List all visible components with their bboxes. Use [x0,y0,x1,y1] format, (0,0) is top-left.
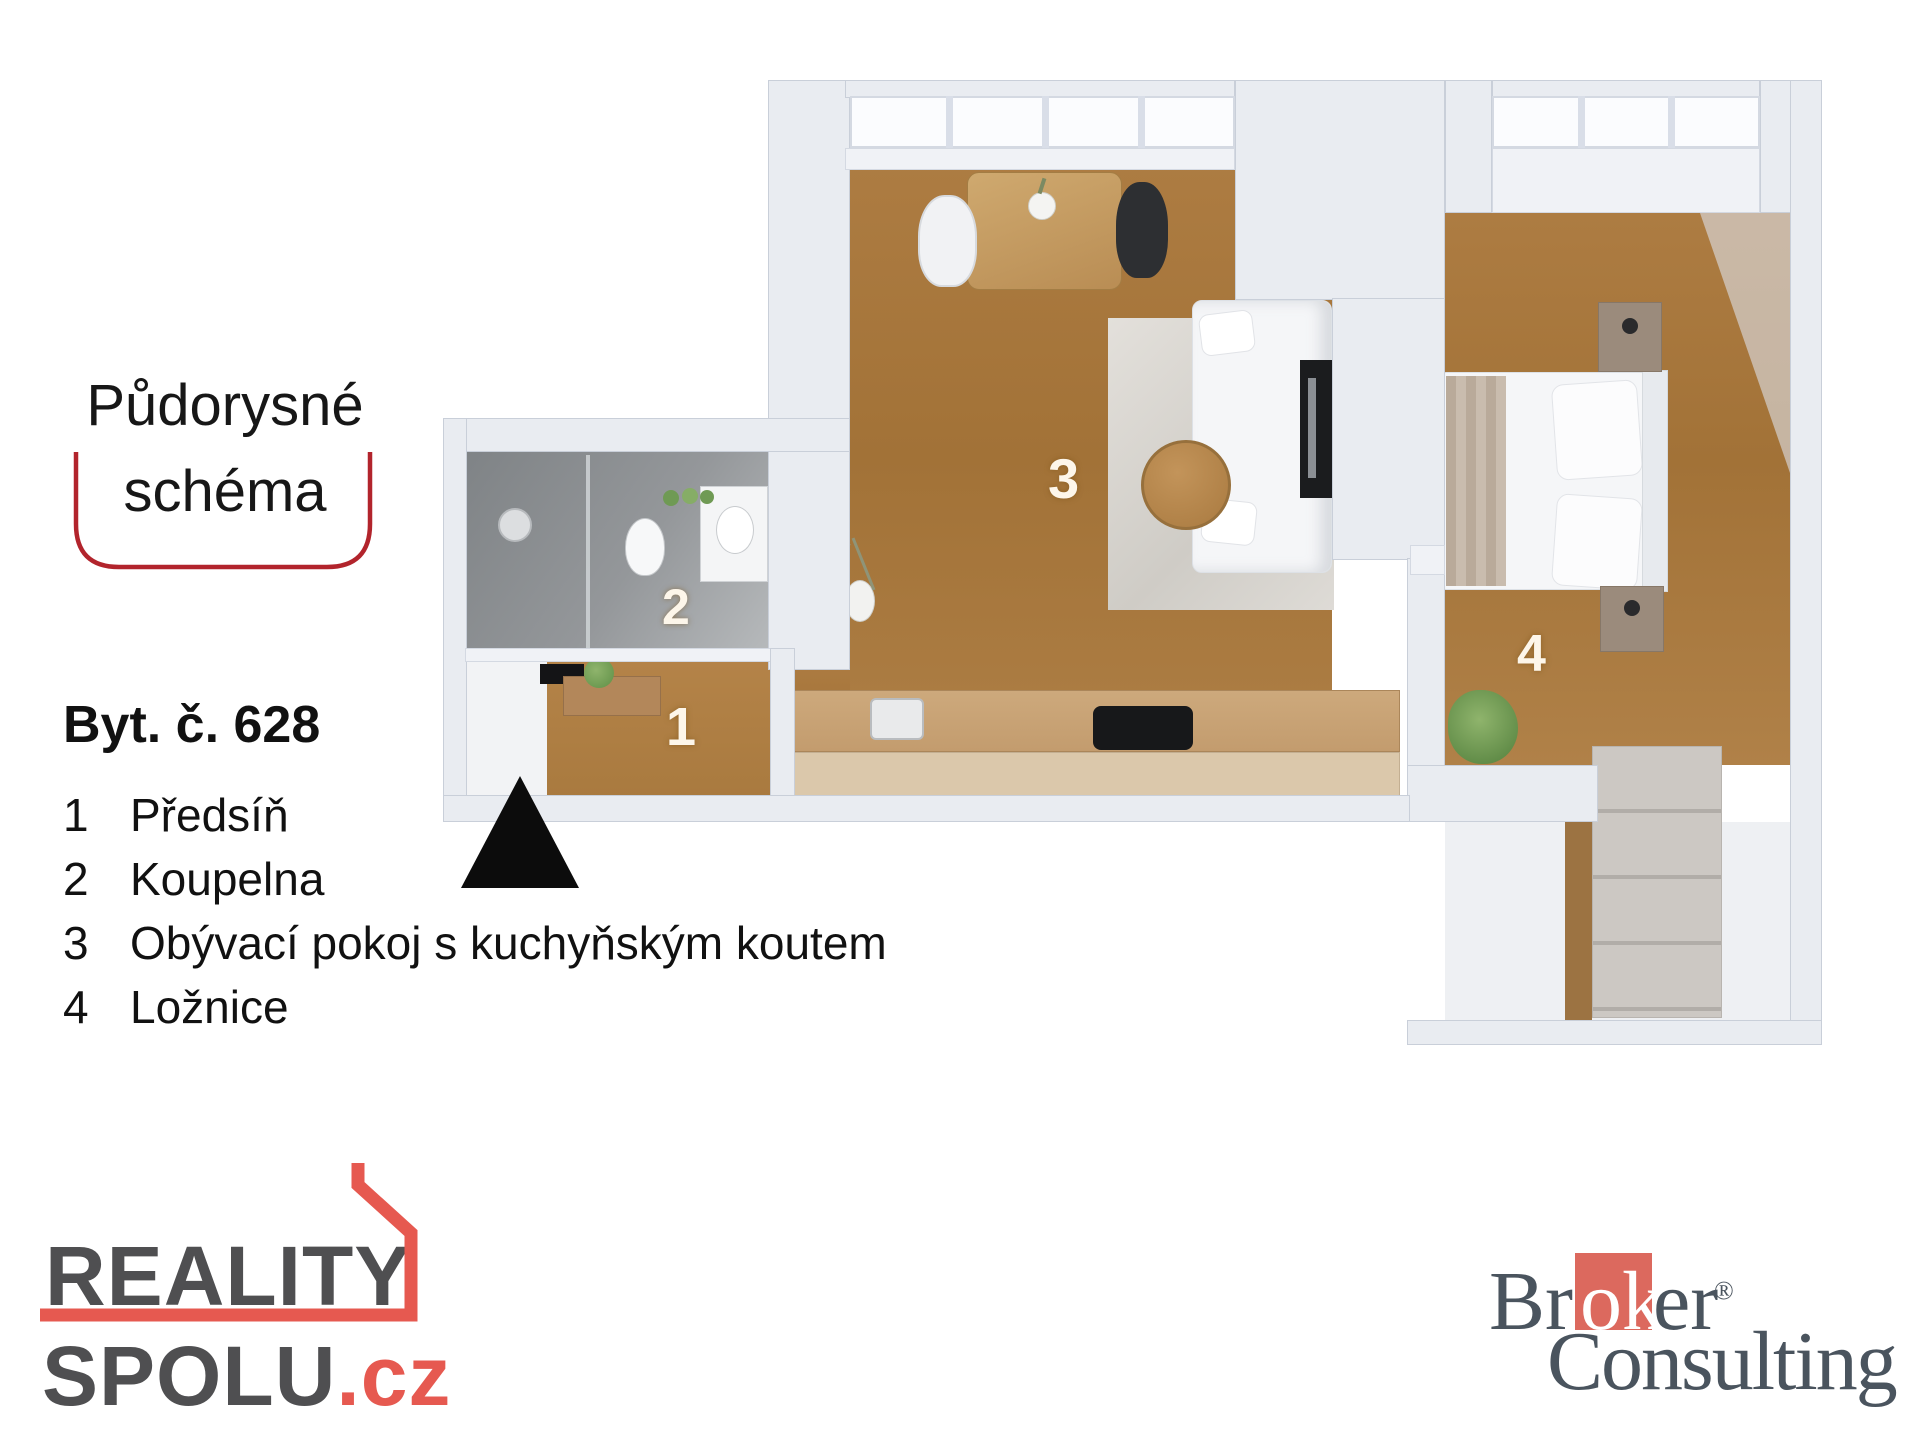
room-marker-living: 3 [1048,446,1079,511]
wall-bottom-main [443,795,1410,822]
bedroom-window-sill [1492,148,1760,213]
nightstand [1598,302,1662,372]
wall-bathroom-hall-divider [465,648,795,662]
legend-label: Koupelna [130,852,324,906]
title-bracket-decoration [70,448,376,576]
wall-bedroom-bay-left [1445,80,1492,213]
legend-item-living: 3 Obývací pokoj s kuchyňským koutem [63,916,887,980]
legend-num: 4 [63,980,130,1034]
wall-art-image [1308,378,1316,478]
living-window-sill [845,148,1235,170]
wall-closet-bottom [1407,1020,1822,1045]
dining-chair-white [918,195,977,287]
realityspolu-spolu: SPOLU [42,1329,336,1423]
floorplan-flyer: Půdorysné schéma Byt. č. 628 1 Předsíň 2… [0,0,1920,1438]
hall-plant [584,658,614,688]
wall-left-outer [443,418,467,822]
shower-head [498,508,532,542]
wall-living-left [768,80,850,670]
room-marker-bedroom: 4 [1517,624,1546,684]
window-mullion [1138,96,1145,148]
realityspolu-tld: .cz [336,1329,451,1423]
wall-center-upper [1235,80,1445,300]
room-marker-bathroom: 2 [662,578,690,636]
bed-pillow [1551,379,1643,481]
coffee-table [1141,440,1231,530]
window-mullion [946,96,953,148]
realityspolu-roof-icon [40,1155,424,1327]
toilet [625,518,665,576]
closet-wood-strip [1565,822,1592,1020]
hall-desk [563,676,661,716]
nightstand-radio [1622,318,1638,334]
legend-num: 1 [63,788,130,842]
wall-right-outer [1790,80,1822,1045]
kitchen-counter-front [790,752,1400,797]
bathroom-plant [682,488,698,504]
bed-headboard [1642,370,1668,592]
room-marker-hall: 1 [666,696,696,758]
window-mullion [1578,96,1585,148]
wall-bathroom-top [443,418,850,452]
entrance-arrow-icon [461,776,579,888]
bedroom-plant [1448,690,1518,764]
wall-shelf [1410,545,1445,575]
bathroom-plant [663,490,679,506]
dining-chair-black [1116,182,1168,278]
kitchen-sink [870,698,924,740]
dresser [1592,746,1722,1018]
legend-label: Předsíň [130,788,289,842]
apartment-number-label: Byt. č. 628 [63,695,320,755]
wall-center-lower [1332,298,1445,560]
cooktop [1093,706,1193,750]
bathroom-plant [700,490,714,504]
bedroom-window-glass [1492,96,1760,148]
broker-logo-registered-icon: ® [1714,1278,1734,1304]
page-title-line1: Půdorysné [60,372,390,439]
dining-table [967,172,1122,290]
table-vase [1028,192,1056,220]
broker-logo-consulting: Consulting [1547,1320,1896,1404]
legend-item-bedroom: 4 Ložnice [63,980,887,1044]
bed-blanket [1446,376,1506,586]
window-mullion [1042,96,1049,148]
wall-art-frame [1300,360,1332,498]
wall-bedroom-bottom [1407,765,1598,822]
vanity-sink [716,506,754,554]
realityspolu-logo-word2: SPOLU.cz [42,1334,451,1418]
window-mullion [1668,96,1675,148]
wall-hall-right [770,648,795,798]
legend-label: Ložnice [130,980,289,1034]
legend-label: Obývací pokoj s kuchyňským koutem [130,916,887,970]
sofa-pillow [1198,309,1257,357]
nightstand-radio [1624,600,1640,616]
shower-glass-divider [586,455,590,651]
legend-num: 2 [63,852,130,906]
legend-num: 3 [63,916,130,970]
nightstand [1600,586,1664,652]
bed-pillow [1551,493,1643,591]
